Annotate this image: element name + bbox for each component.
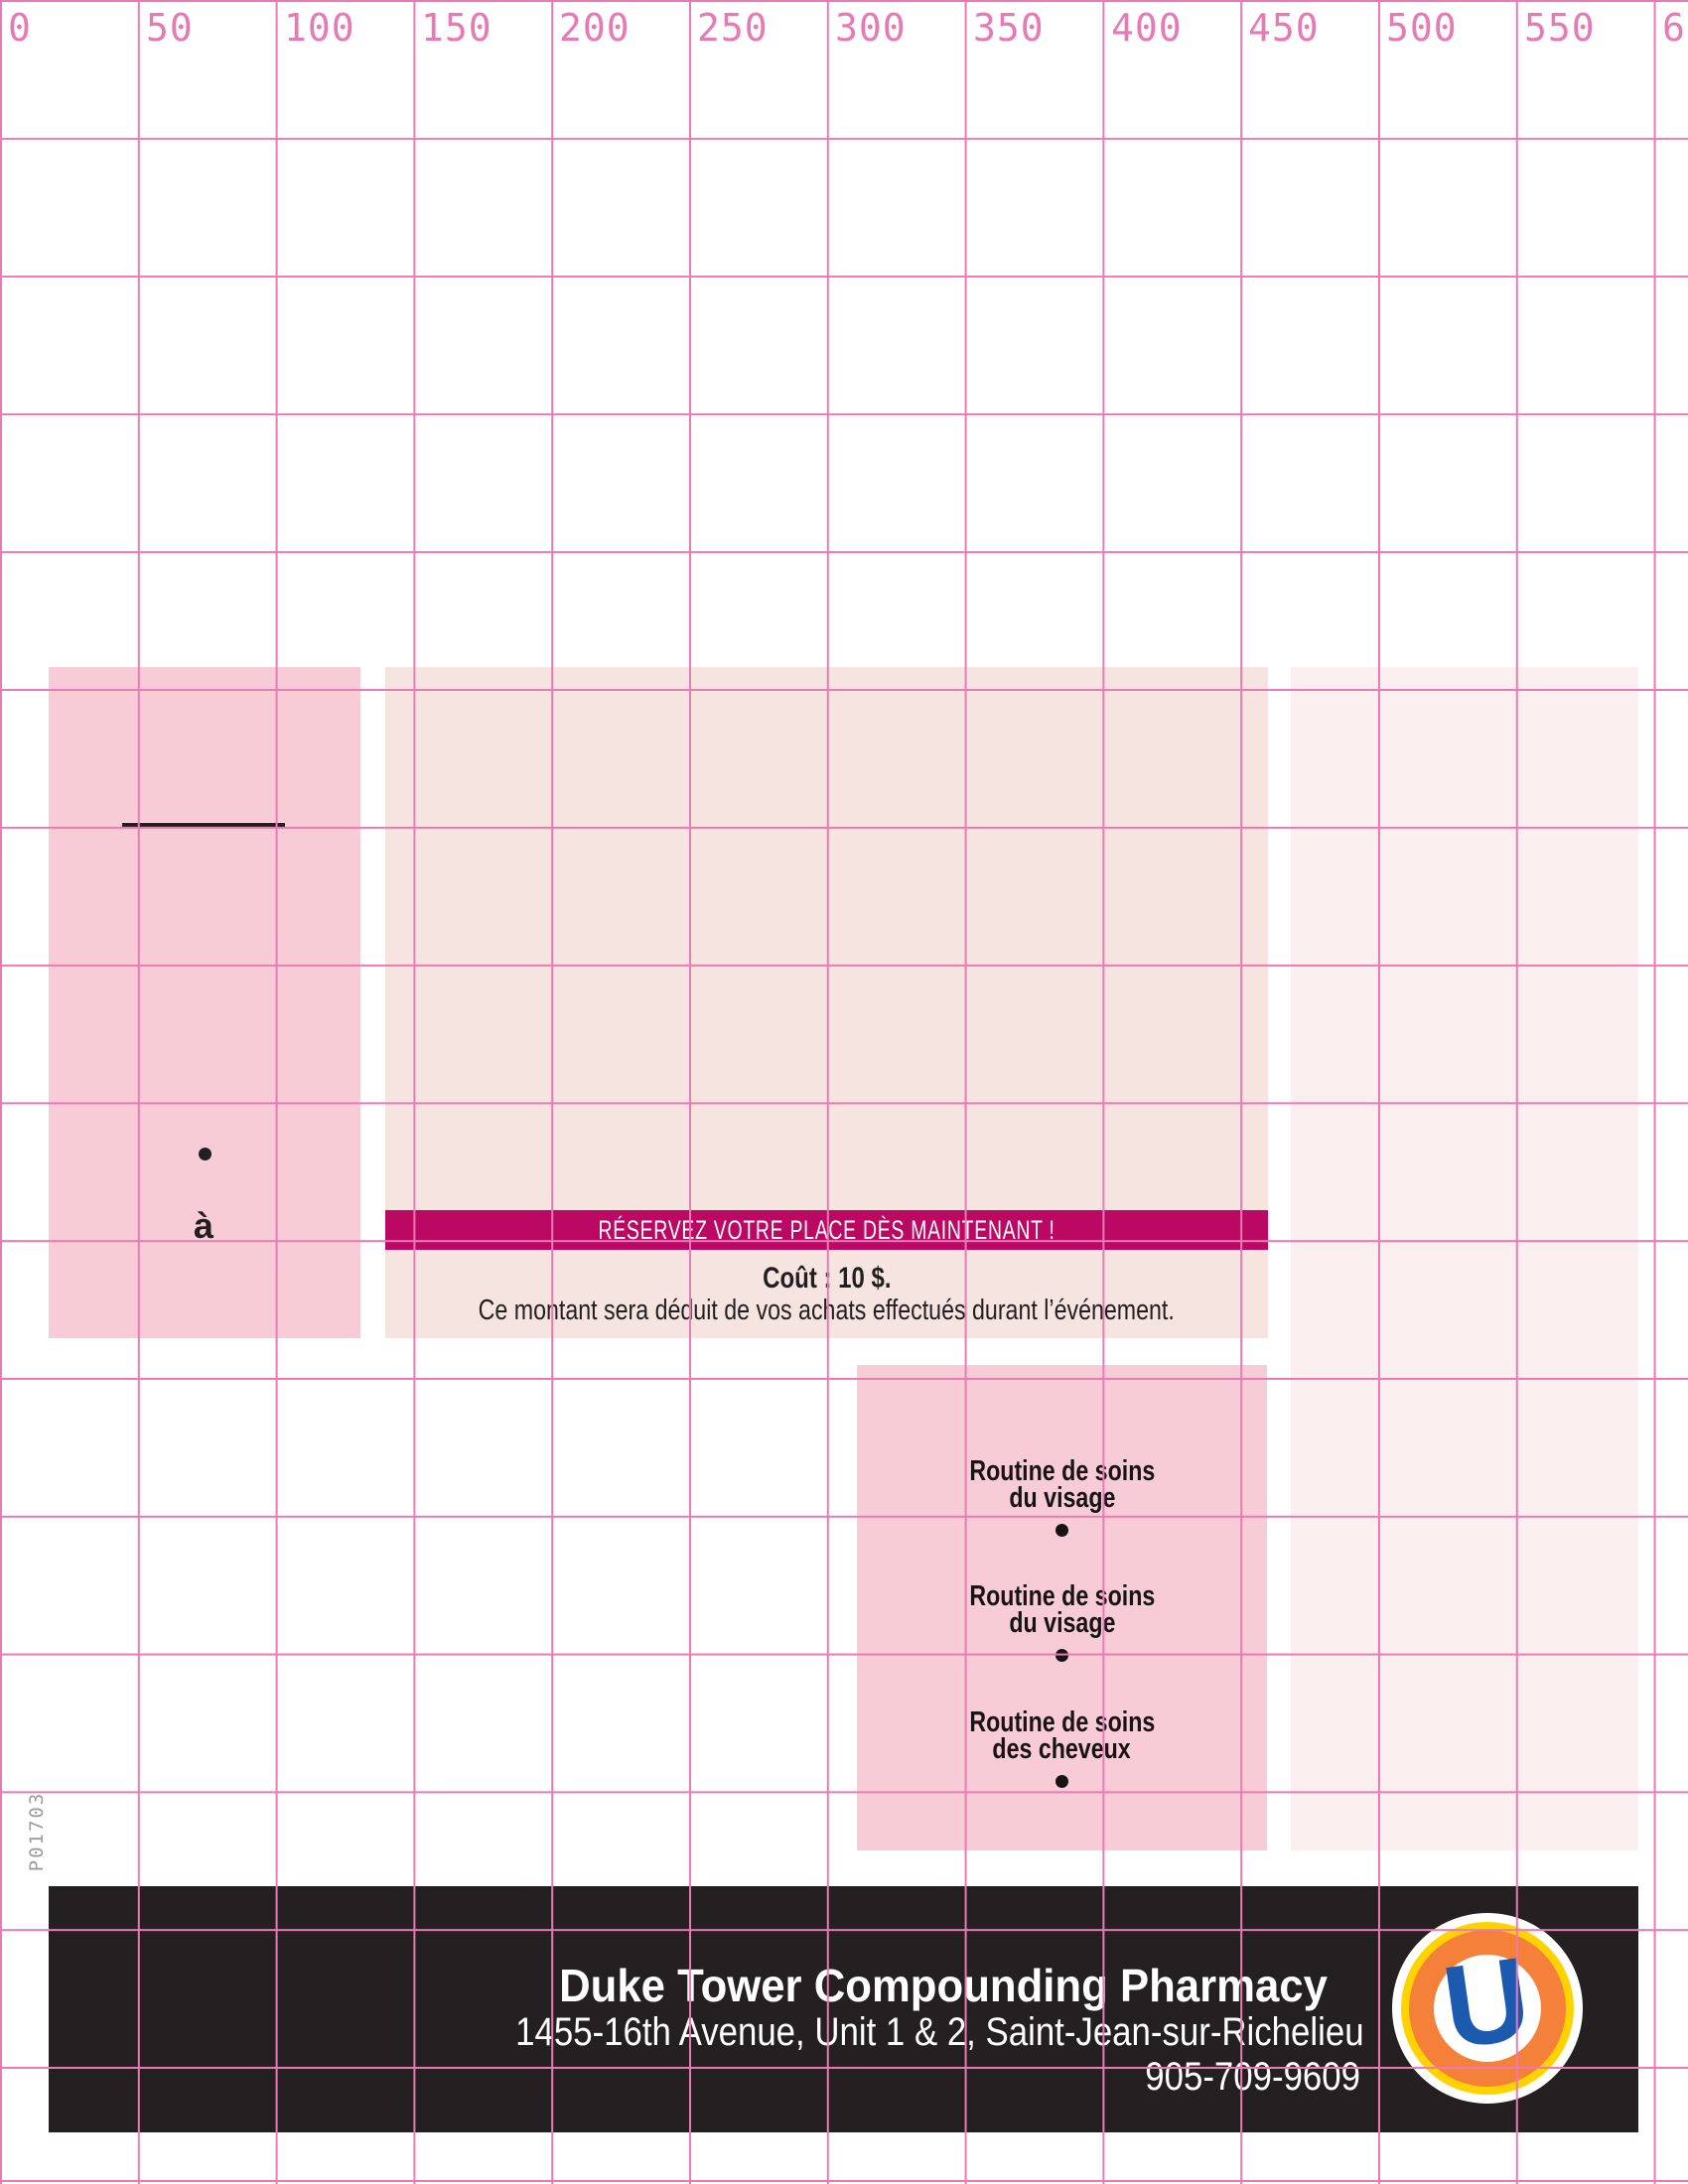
cost-heading-text: Coût : 10 $. <box>763 1263 891 1294</box>
cost-note: Ce montant sera déduit de vos achats eff… <box>385 1296 1268 1326</box>
ruler-label: 200 <box>559 6 631 50</box>
reservation-banner-text: RÉSERVEZ VOTRE PLACE DÈS MAINTENANT ! <box>598 1215 1055 1246</box>
grid-bottom-line <box>0 2180 1688 2182</box>
service-bullet-icon <box>1055 1775 1068 1788</box>
reservation-banner: RÉSERVEZ VOTRE PLACE DÈS MAINTENANT ! <box>385 1210 1268 1250</box>
service-title-line2: des cheveux <box>993 1736 1131 1763</box>
cost-note-text: Ce montant sera déduit de vos achats eff… <box>479 1296 1175 1326</box>
date-separator: à <box>174 1205 233 1247</box>
ruler-label: 400 <box>1111 6 1183 50</box>
ruler-label: 50 <box>146 6 194 50</box>
right-column-block <box>1291 667 1638 1850</box>
uniprix-logo: U <box>1392 1913 1583 2104</box>
service-title-line1: Routine de soins <box>969 1458 1155 1485</box>
date-underline-rule <box>122 823 285 828</box>
service-group: Routine de soins du visage <box>857 1583 1267 1662</box>
ruler-label: 450 <box>1248 6 1320 50</box>
service-title-line2: du visage <box>1009 1485 1115 1512</box>
plate-code: P01703 <box>26 1792 48 1872</box>
ruler-label: 150 <box>421 6 492 50</box>
service-group: Routine de soins du visage <box>857 1458 1267 1537</box>
cost-heading: Coût : 10 $. <box>385 1263 1268 1294</box>
ruler-label: 500 <box>1386 6 1458 50</box>
pricing-section: Coût : 10 $. Ce montant sera déduit de v… <box>385 1263 1268 1326</box>
ruler-label: 0 <box>8 6 32 50</box>
footer-text-block: Duke Tower Compounding Pharmacy 1455-16t… <box>457 1961 1360 2100</box>
service-bullet-icon <box>1055 1649 1068 1662</box>
ruler-label: 300 <box>835 6 907 50</box>
service-bullet-icon <box>1055 1524 1068 1537</box>
service-title-line2: du visage <box>1009 1610 1115 1637</box>
ruler-label: 250 <box>697 6 769 50</box>
ruler-label: 100 <box>284 6 355 50</box>
pharmacy-name: Duke Tower Compounding Pharmacy <box>547 1961 1339 2010</box>
ruler-label: 550 <box>1524 6 1596 50</box>
pharmacy-address: 1455-16th Avenue, Unit 1 & 2, Saint-Jean… <box>515 2010 1302 2055</box>
service-group: Routine de soins des cheveux <box>857 1709 1267 1788</box>
ruler-label: 350 <box>973 6 1045 50</box>
bullet-icon <box>199 1148 211 1160</box>
service-title-line1: Routine de soins <box>969 1709 1155 1736</box>
service-title-line1: Routine de soins <box>969 1583 1155 1610</box>
logo-letter-u: U <box>1380 1901 1596 2116</box>
print-proof-page: à RÉSERVEZ VOTRE PLACE DÈS MAINTENANT ! … <box>0 0 1688 2184</box>
ruler-label: 600 <box>1662 6 1688 50</box>
pharmacy-phone: 905-709-9609 <box>574 2055 1360 2100</box>
